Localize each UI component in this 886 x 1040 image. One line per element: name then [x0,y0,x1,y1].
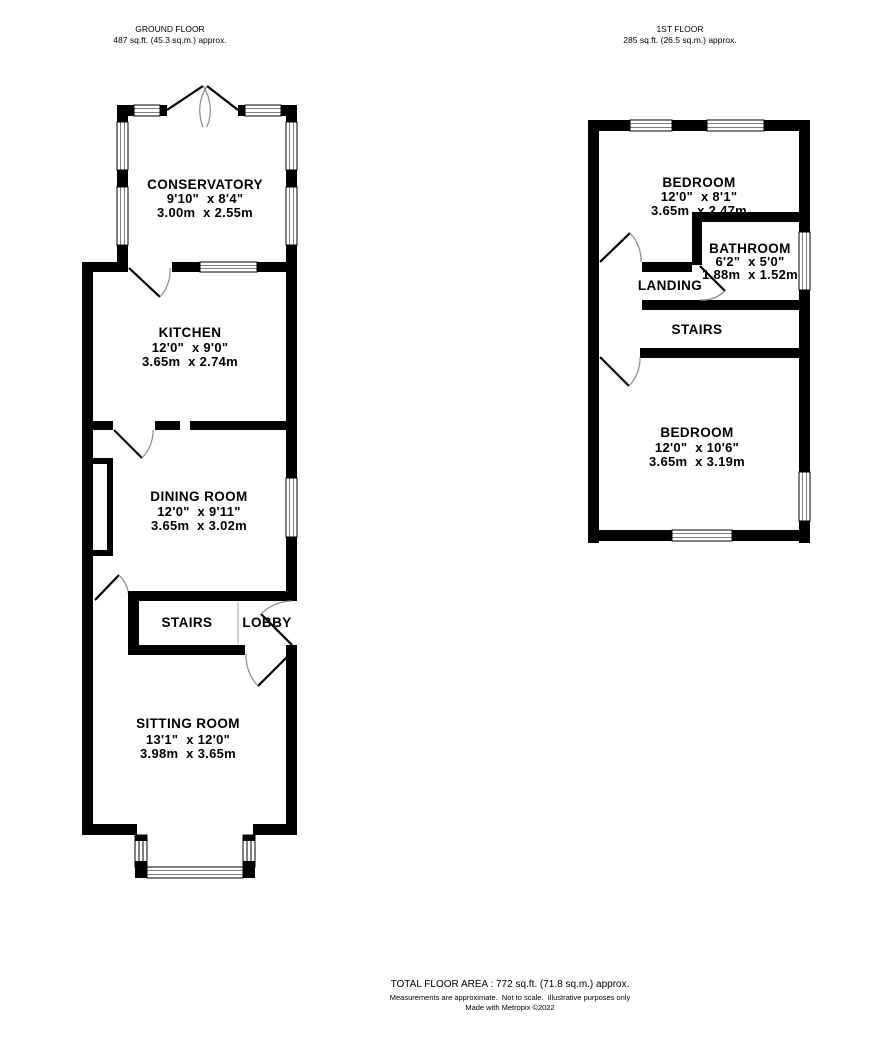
kitchen-dims-metric: 3.65m x 2.74m [142,354,238,369]
wall-stairs-south [128,645,245,655]
ground-floor-area: 487 sq.ft. (45.3 sq.m.) approx. [113,35,226,45]
door-leaf [167,86,203,110]
wall-top [672,120,707,131]
wall-dining-south [128,591,297,601]
bedroom-front-door-arc [630,233,641,262]
bay-window-cap [135,835,147,841]
conservatory-window-top-right [245,105,281,116]
conservatory-post [286,170,297,187]
conservatory-corner-block [117,105,134,116]
wall-left-exterior [588,120,599,543]
bay-window-cap [243,835,255,841]
dining-door-arc [142,430,153,458]
floorplan-drawing: GROUND FLOOR 487 sq.ft. (45.3 sq.m.) app… [0,0,886,1040]
hall-dining-door-leaf [95,575,119,600]
bathroom-window [799,232,810,290]
bay-window [135,835,255,878]
conservatory-post [117,245,128,262]
wall-right-exterior-upper [286,262,297,601]
bay-window-corner [243,867,255,878]
ground-floor-title: GROUND FLOOR [135,24,204,34]
wall-bathroom-west [692,212,702,265]
bedroom-back-window-bottom [672,530,732,541]
wall-sitting-south [253,824,297,835]
bedroom-back-window-side [799,472,810,521]
french-doors [167,86,238,127]
disclaimer-text: Measurements are approximate. Not to sca… [390,993,631,1002]
wall-bottom [588,530,672,541]
kitchen-window [200,262,257,272]
wall-kitchen-dining [82,421,113,430]
conservatory-post [286,245,297,262]
first-floor-plan: BEDROOM 12'0" x 8'1" 3.65m x 2.47m BATHR… [588,120,810,543]
dining-window [286,478,297,537]
bedroom-back-dims-metric: 3.65m x 3.19m [649,454,745,469]
chimney-breast [93,458,113,556]
wall-kitchen-north [172,262,200,272]
conservatory-post [117,170,128,187]
bedroom-front-window-right [707,120,764,131]
wall-top [588,120,630,131]
kitchen-door-arc [160,268,170,297]
conservatory-door-jamb [238,105,245,116]
wall-stairs-north [642,300,810,310]
conservatory-window-right-upper [286,122,297,170]
bathroom-door-arc [700,291,725,300]
bay-window-cap [243,861,255,867]
conservatory-dims-metric: 3.00m x 2.55m [157,205,253,220]
kitchen-dims-imperial: 12'0" x 9'0" [152,340,229,355]
wall-right-exterior [799,290,810,472]
conservatory-window-left-lower [117,187,128,245]
conservatory-corner-block [281,105,297,116]
conservatory-window-right-lower [286,187,297,245]
bay-window-front [147,867,243,878]
wall-right-exterior-lower [286,645,297,835]
conservatory-window-left-upper [117,122,128,170]
sitting-room-dims-metric: 3.98m x 3.65m [140,746,236,761]
bay-window-corner [135,867,147,878]
dining-door-leaf [114,430,142,458]
sitting-door-arc [246,654,258,686]
sitting-door-leaf [258,654,290,686]
first-floor-title: 1ST FLOOR [656,24,703,34]
wall-kitchen-north [257,262,297,272]
bedroom-front-dims-metric: 3.65m x 2.47m [651,203,747,218]
bedroom-back-dims-imperial: 12'0" x 10'6" [655,440,739,455]
wall-bottom [732,530,810,541]
hall-dining-door-arc [119,575,129,599]
wall-kitchen-north [82,262,128,272]
bedroom-back-door-leaf [600,357,629,386]
conservatory-door-jamb [160,105,167,116]
bedroom-front-window-left [630,120,672,131]
bay-window-cap [135,861,147,867]
dining-room-label: DINING ROOM [150,489,247,504]
landing-label: LANDING [638,278,702,293]
metropix-credit: Made with Metropix ©2022 [465,1003,554,1012]
bedroom-back-door-arc [629,357,640,386]
conservatory-window-top-left [134,105,160,116]
stairs-label-ground: STAIRS [162,615,213,630]
bedroom-front-door-leaf [600,233,630,262]
kitchen-door-leaf [129,268,160,297]
stairs-label-first: STAIRS [672,322,723,337]
dining-room-dims-metric: 3.65m x 3.02m [151,518,247,533]
floorplan-page: GROUND FLOOR 487 sq.ft. (45.3 sq.m.) app… [0,0,886,1040]
conservatory-dims-imperial: 9'10" x 8'4" [167,191,244,206]
wall-landing-north [642,262,692,272]
front-door-arc [261,601,292,614]
bedroom-front-dims-imperial: 12'0" x 8'1" [661,189,738,204]
conservatory-label: CONSERVATORY [147,177,263,192]
bedroom-back-label: BEDROOM [660,425,733,440]
kitchen-label: KITCHEN [159,325,222,340]
wall-stairs-south [640,348,810,358]
lobby-label: LOBBY [242,615,291,630]
total-floor-area: TOTAL FLOOR AREA : 772 sq.ft. (71.8 sq.m… [391,979,630,990]
door-leaf [207,86,238,110]
sitting-room-dims-imperial: 13'1" x 12'0" [146,732,230,747]
wall-sitting-south [82,824,137,835]
ground-floor-plan: CONSERVATORY 9'10" x 8'4" 3.00m x 2.55m … [82,86,297,878]
wall-top [764,120,810,131]
dining-room-dims-imperial: 12'0" x 9'11" [157,504,240,519]
bathroom-dims-metric: 1.88m x 1.52m [702,267,798,282]
wall-left-exterior [82,262,93,835]
wall-kitchen-dining [155,421,180,430]
sitting-room-label: SITTING ROOM [136,716,240,731]
wall-kitchen-dining [190,421,286,430]
chimney-breast-recess [93,464,107,550]
first-floor-area: 285 sq.ft. (26.5 sq.m.) approx. [623,35,736,45]
bedroom-front-label: BEDROOM [662,175,735,190]
